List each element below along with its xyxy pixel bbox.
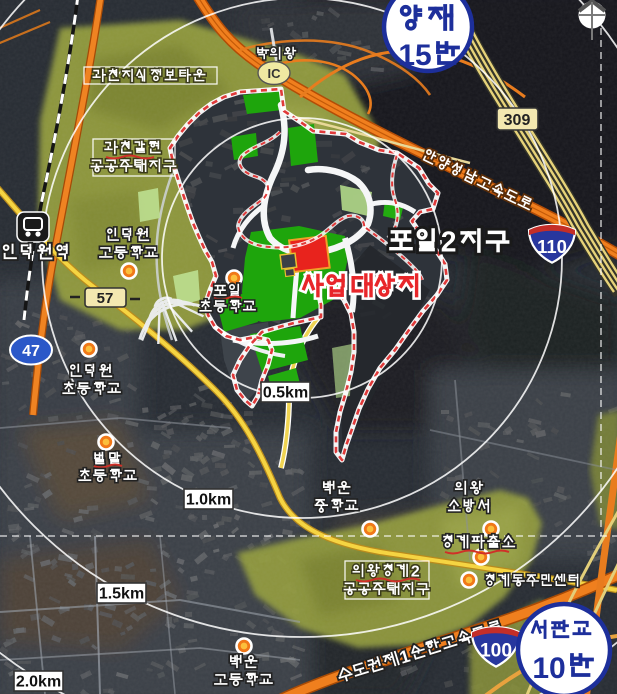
svg-text:2.0km: 2.0km [16, 674, 61, 691]
svg-text:1.5km: 1.5km [99, 586, 144, 603]
svg-text:2: 2 [441, 226, 457, 258]
svg-text:110: 110 [537, 236, 567, 257]
svg-text:0.5km: 0.5km [263, 385, 308, 402]
svg-text:IC: IC [268, 66, 282, 81]
svg-text:309: 309 [504, 112, 531, 129]
svg-text:57: 57 [97, 290, 114, 307]
svg-text:15: 15 [398, 39, 431, 72]
svg-text:100: 100 [480, 641, 512, 662]
svg-text:10: 10 [532, 652, 565, 685]
svg-text:47: 47 [22, 343, 40, 360]
svg-text:1.0km: 1.0km [186, 492, 231, 509]
